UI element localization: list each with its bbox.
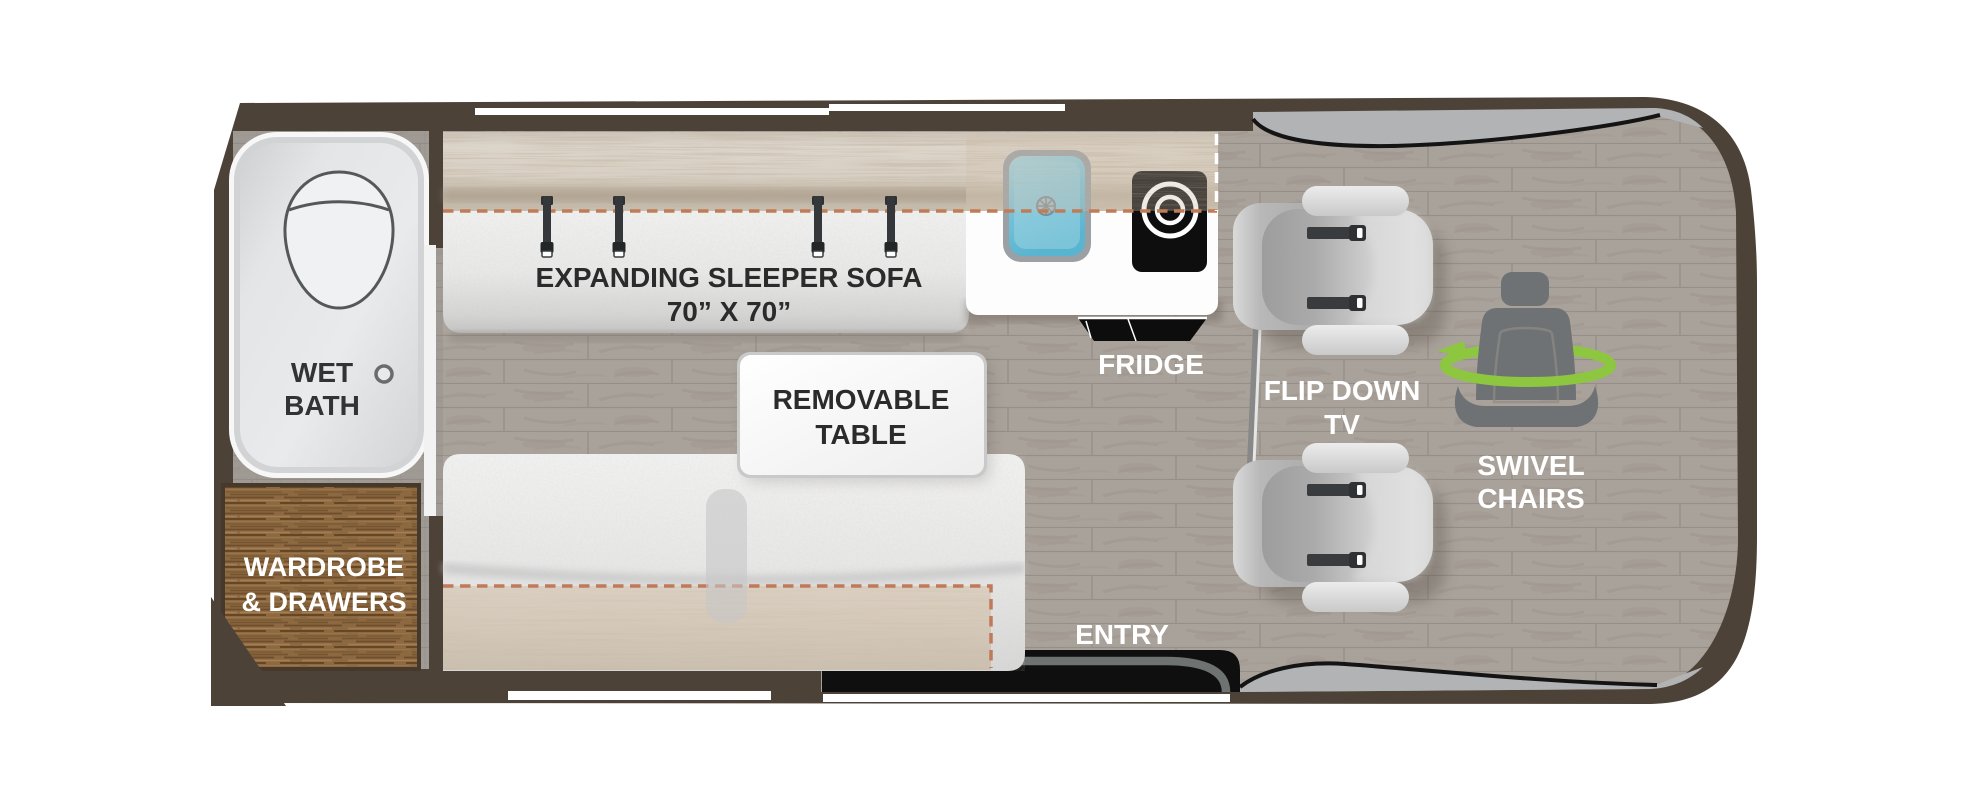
svg-text:WARDROBE: WARDROBE — [244, 552, 405, 582]
svg-text:BATH: BATH — [284, 390, 360, 421]
svg-text:CHAIRS: CHAIRS — [1477, 483, 1584, 514]
svg-text:WET: WET — [291, 357, 353, 388]
svg-text:70” X 70”: 70” X 70” — [667, 296, 792, 327]
svg-text:EXPANDING SLEEPER SOFA: EXPANDING SLEEPER SOFA — [536, 262, 923, 293]
svg-text:REMOVABLE: REMOVABLE — [773, 384, 950, 415]
svg-text:TABLE: TABLE — [815, 419, 906, 450]
svg-text:ENTRY: ENTRY — [1075, 619, 1169, 650]
svg-text:TV: TV — [1324, 409, 1360, 440]
svg-text:FRIDGE: FRIDGE — [1098, 349, 1204, 380]
svg-text:SWIVEL: SWIVEL — [1477, 450, 1584, 481]
svg-text:FLIP DOWN: FLIP DOWN — [1264, 375, 1421, 406]
svg-text:& DRAWERS: & DRAWERS — [241, 587, 406, 617]
